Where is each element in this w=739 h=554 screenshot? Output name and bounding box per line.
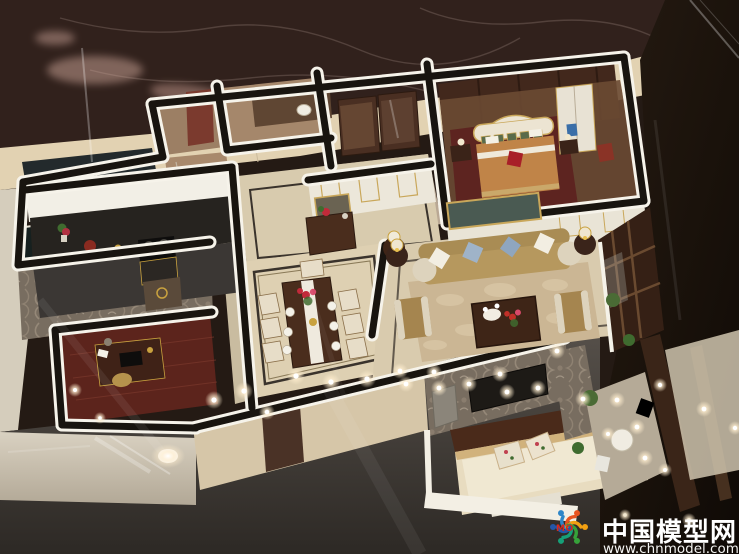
watermark-site-url: www.chnmodel.com	[603, 541, 739, 554]
lamp-left-glow	[395, 248, 399, 252]
model-photo: MO 中国模型网 www.chnmodel.com	[0, 0, 739, 554]
nightstand-lamp	[565, 134, 571, 140]
nightstand-left	[450, 144, 472, 162]
armchair-left	[394, 296, 433, 340]
bed-pillow	[529, 129, 543, 137]
nightstand-lamp	[458, 139, 465, 146]
terrace-plant	[572, 442, 584, 454]
balcony-plant	[606, 293, 620, 307]
console-cabinet	[306, 212, 356, 255]
master-red-chair	[597, 143, 615, 162]
desk-ornament	[104, 338, 112, 346]
armchair-right	[554, 290, 593, 334]
table-surface-bottom-left	[0, 432, 196, 505]
console-ornament	[342, 213, 348, 219]
desk-lamp	[147, 347, 153, 353]
bed-red-pillow	[507, 151, 524, 168]
lamp-right-glow	[583, 236, 587, 240]
toilet-sink	[297, 105, 311, 116]
wardrobe-left-door	[340, 102, 375, 150]
nightstand-right	[559, 139, 579, 155]
balcony-plant	[623, 334, 635, 346]
coffee-table	[472, 296, 541, 347]
photo-stage: MO 中国模型网 www.chnmodel.com	[0, 0, 739, 554]
washing-machine	[143, 277, 182, 311]
console-leaves	[318, 206, 324, 212]
desk-blotter	[119, 351, 143, 368]
bed-pillow	[485, 136, 499, 144]
watermark-logo-text: MO	[556, 524, 574, 534]
